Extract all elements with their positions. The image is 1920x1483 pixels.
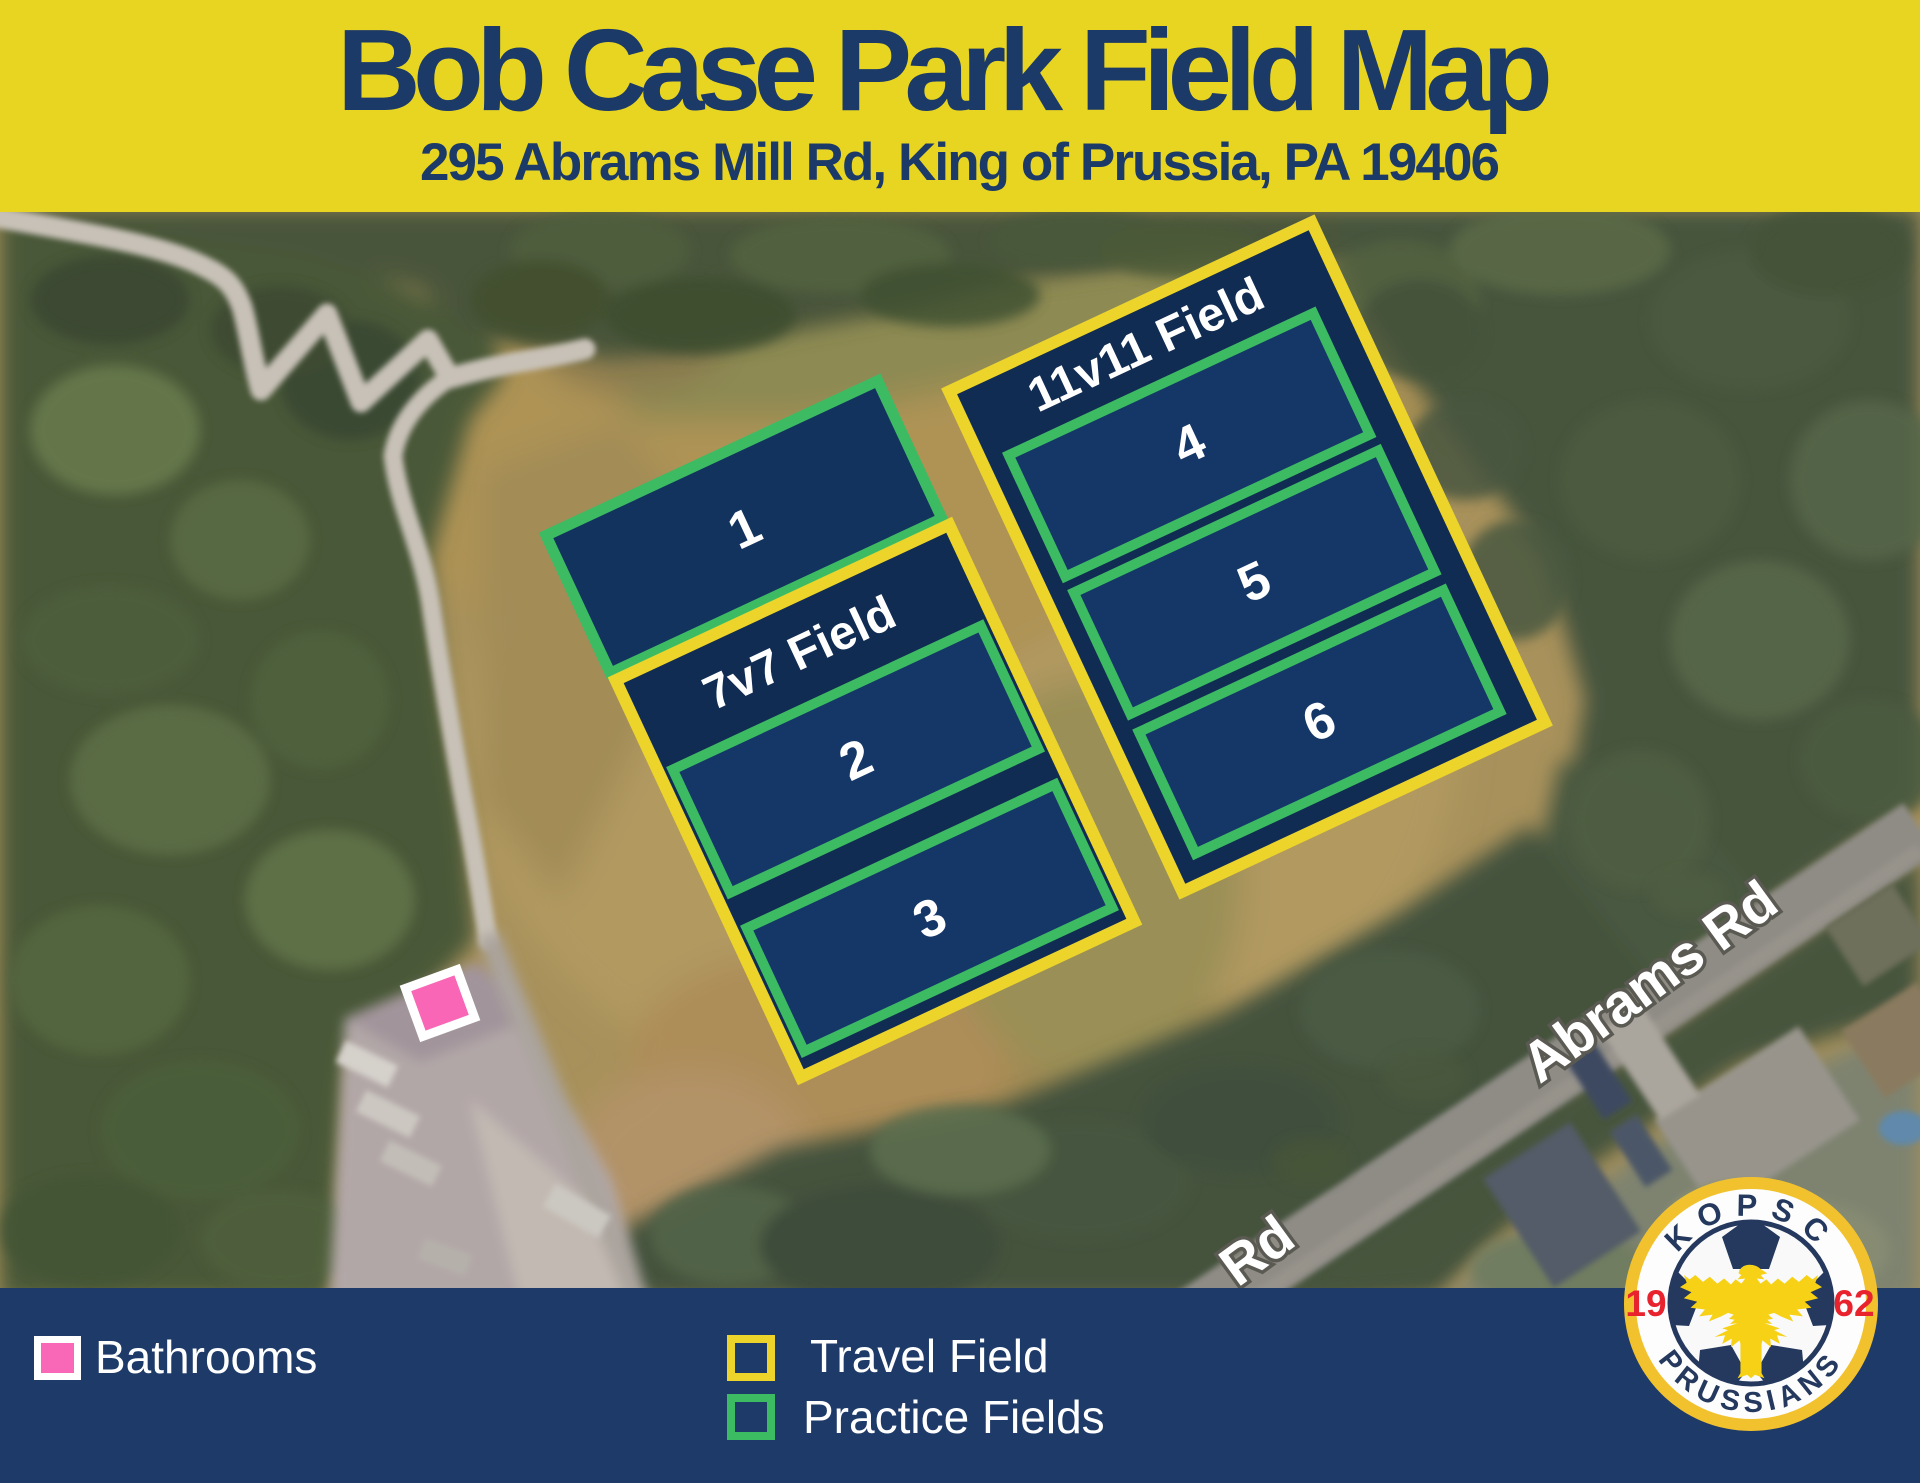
svg-text:Travel Field: Travel Field	[810, 1330, 1049, 1382]
svg-text:Bathrooms: Bathrooms	[95, 1331, 317, 1383]
svg-text:Practice Fields: Practice Fields	[803, 1391, 1105, 1443]
svg-text:Bob Case Park Field Map: Bob Case Park Field Map	[337, 5, 1553, 135]
svg-text:62: 62	[1833, 1283, 1874, 1324]
svg-text:19: 19	[1625, 1283, 1666, 1324]
svg-text:295 Abrams Mill Rd, King of Pr: 295 Abrams Mill Rd, King of Prussia, PA …	[420, 133, 1500, 192]
